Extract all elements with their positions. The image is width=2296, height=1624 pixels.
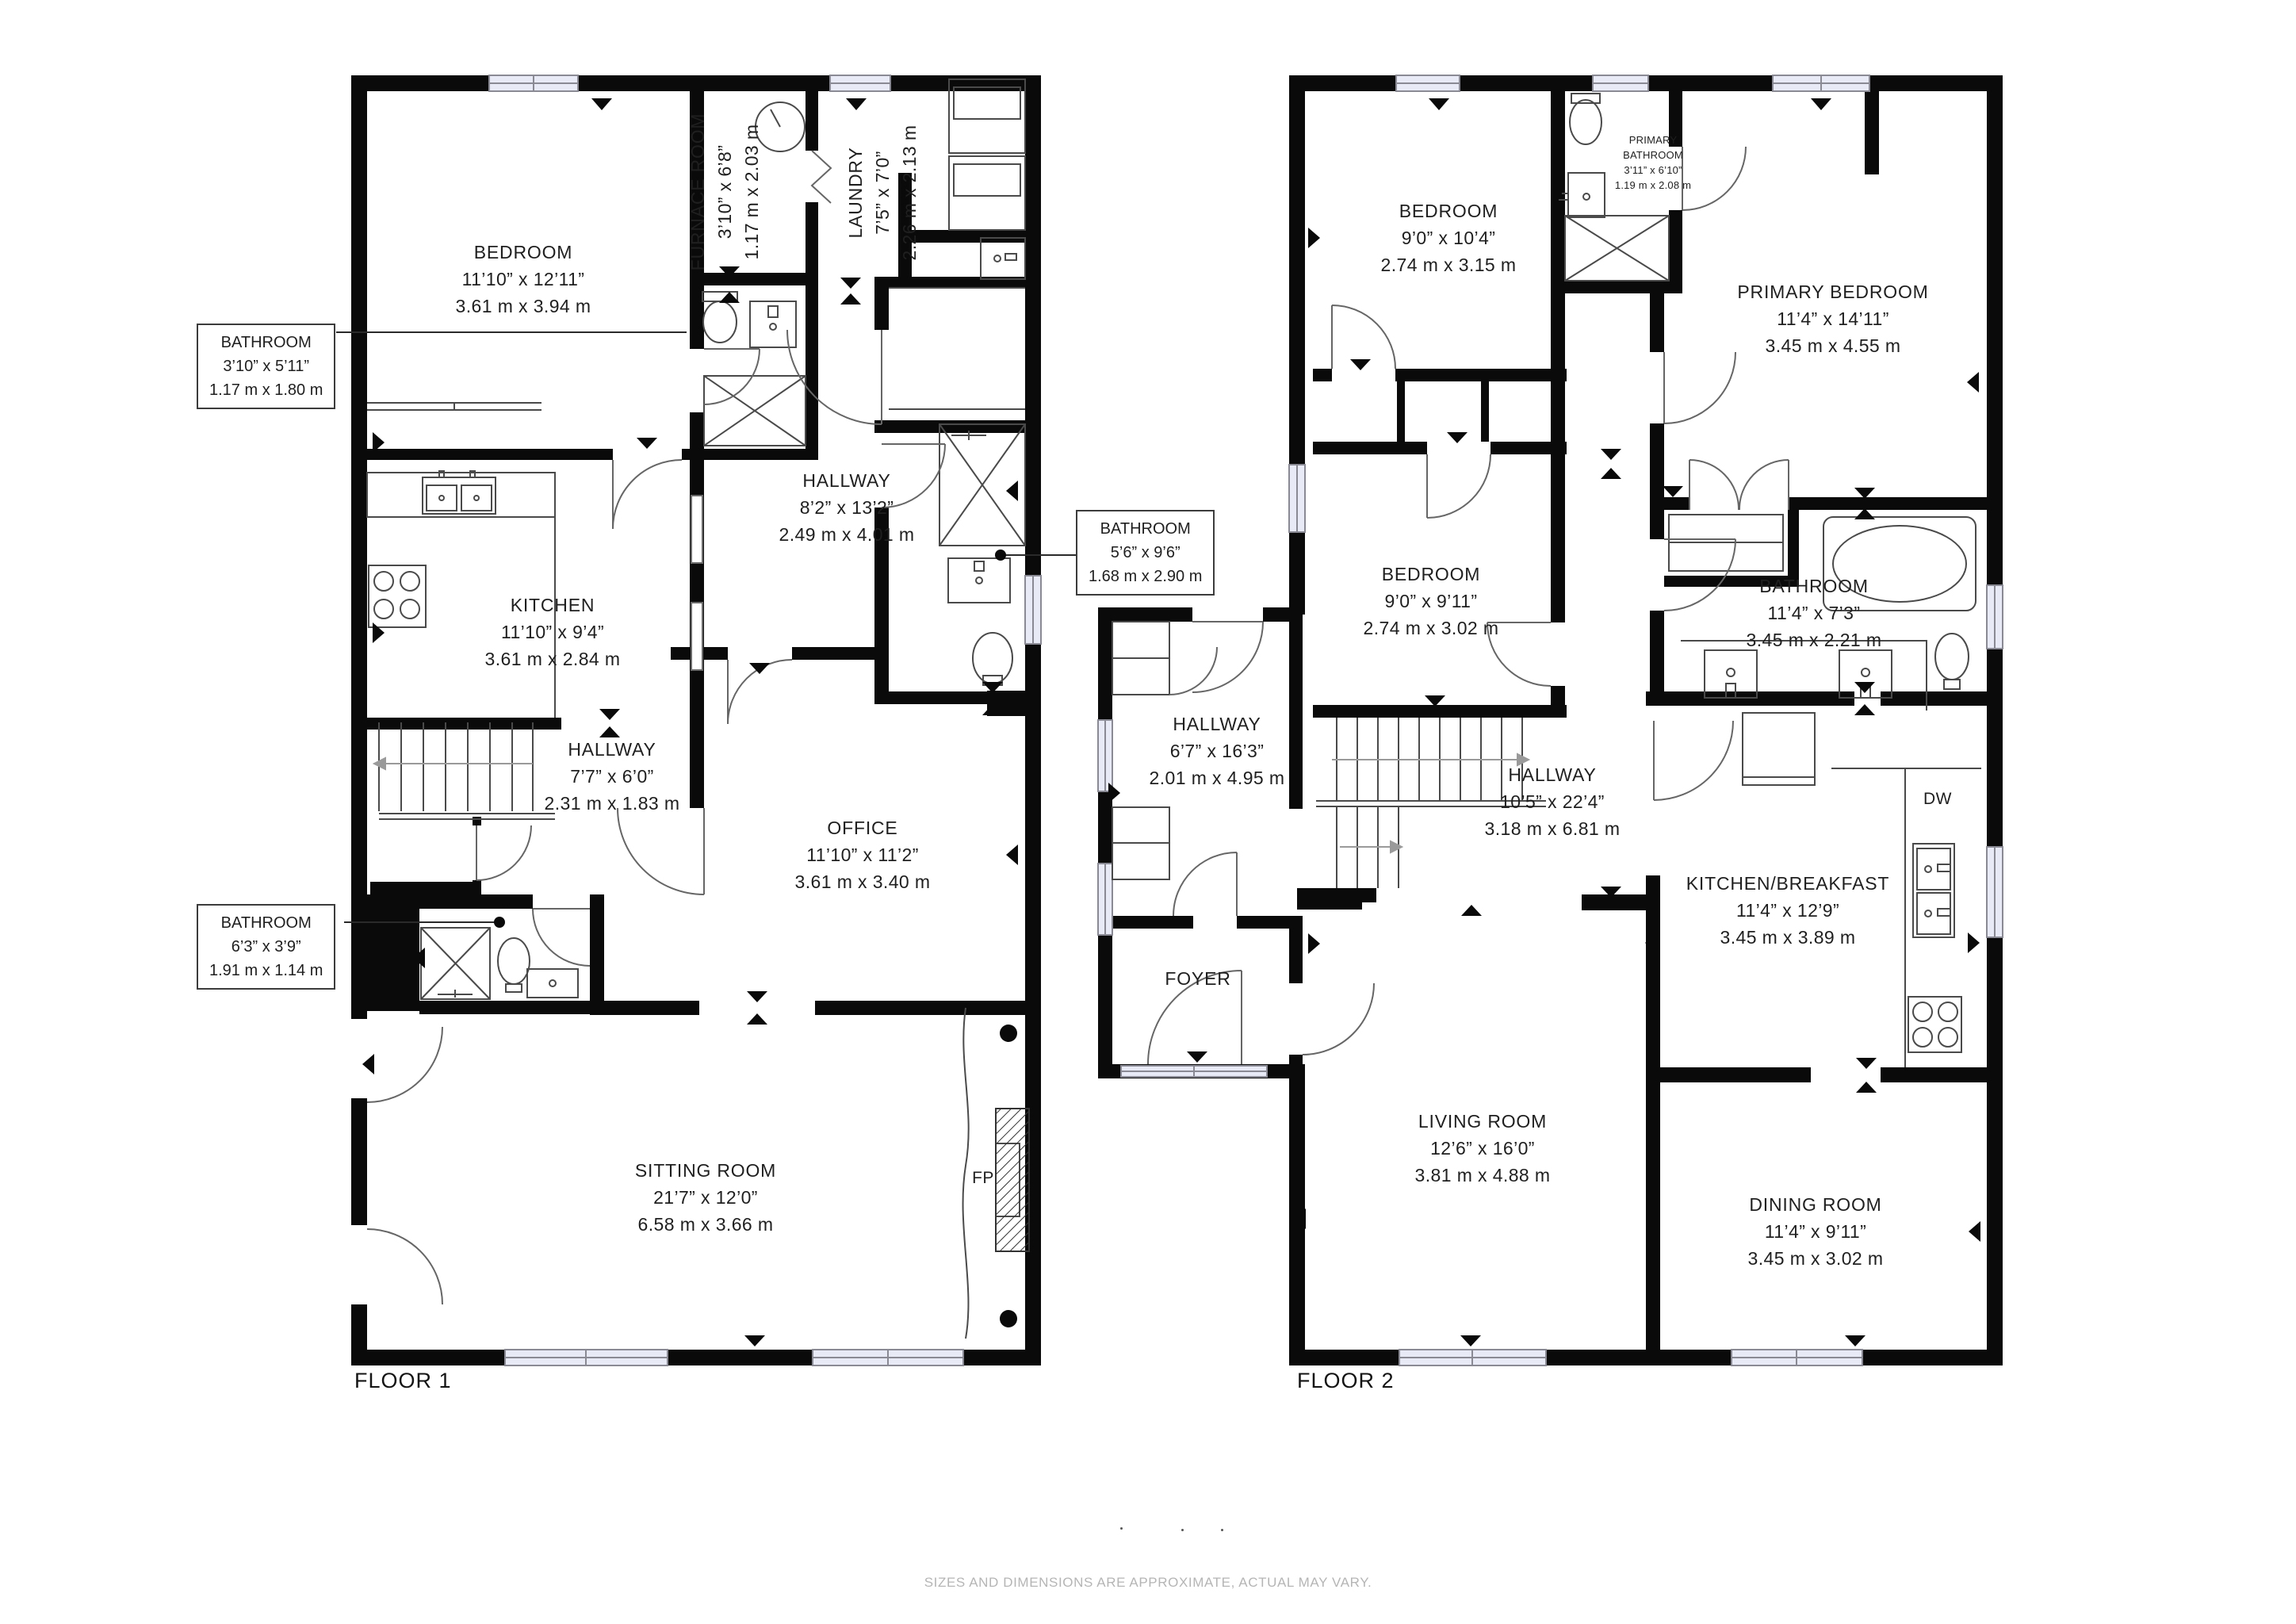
floor1-title: FLOOR 1 xyxy=(354,1369,452,1393)
floor2-title: FLOOR 2 xyxy=(1297,1369,1395,1393)
callout-bathroom-mid: BATHROOM 5’6” x 9’6” 1.68 m x 2.90 m xyxy=(1076,510,1215,596)
sitting-room-dot-top xyxy=(1000,1025,1017,1042)
room-label-sitting-room: SITTING ROOM 21’7” x 12’0” 6.58 m x 3.66… xyxy=(635,1157,776,1238)
callout-bathroom-top: BATHROOM 3’10” x 5’11” 1.17 m x 1.80 m xyxy=(197,324,335,409)
fireplace-label: FP xyxy=(972,1169,994,1188)
room-label-hallway-side-f2: HALLWAY 6’7” x 16’3” 2.01 m x 4.95 m xyxy=(1150,710,1285,791)
room-label-living-room: LIVING ROOM 12’6” x 16’0” 3.81 m x 4.88 … xyxy=(1415,1108,1551,1189)
room-label-foyer: FOYER xyxy=(1165,965,1230,992)
room-label-office: OFFICE 11’10” x 11’2” 3.61 m x 3.40 m xyxy=(795,814,931,895)
room-label-bedroom-top-f2: BEDROOM 9’0” x 10’4” 2.74 m x 3.15 m xyxy=(1381,197,1517,278)
sitting-room-dot-bottom xyxy=(1000,1310,1017,1327)
disclaimer-text: SIZES AND DIMENSIONS ARE APPROXIMATE, AC… xyxy=(0,1575,2296,1591)
room-label-kitchen-f1: KITCHEN 11’10” x 9’4” 3.61 m x 2.84 m xyxy=(485,592,621,672)
room-label-laundry: LAUNDRY 7’5” x 7’0” 2.26 m x 2.13 m xyxy=(842,125,923,261)
floorplan-page: BEDROOM 11’10” x 12’11” 3.61 m x 3.94 m … xyxy=(0,0,2296,1624)
room-label-bedroom-f1: BEDROOM 11’10” x 12’11” 3.61 m x 3.94 m xyxy=(456,239,591,320)
room-label-primary-bedroom: PRIMARY BEDROOM 11’4” x 14’11” 3.45 m x … xyxy=(1737,278,1928,359)
room-label-bathroom-f2: BATHROOM 11’4” x 7’3” 3.45 m x 2.21 m xyxy=(1747,573,1882,653)
room-label-bedroom-mid-f2: BEDROOM 9’0” x 9’11” 2.74 m x 3.02 m xyxy=(1364,561,1499,642)
fireplace-hatch xyxy=(996,1109,1029,1251)
room-label-hallway-main-f2: HALLWAY 10’5” x 22’4” 3.18 m x 6.81 m xyxy=(1485,761,1621,842)
callout-bathroom-small: BATHROOM 6’3” x 3’9” 1.91 m x 1.14 m xyxy=(197,904,335,990)
room-label-furnace-room: FURNACE ROOM 3’10” x 6’8” 1.17 m x 2.03 … xyxy=(684,113,765,271)
floorplan-drawing xyxy=(0,0,2296,1624)
faded-logo-marks xyxy=(1115,1524,1234,1534)
room-label-hallway-main-f1: HALLWAY 8’2” x 13’2” 2.49 m x 4.01 m xyxy=(779,467,915,548)
dishwasher-label: DW xyxy=(1923,790,1952,809)
room-label-dining-room: DINING ROOM 11’4” x 9’11” 3.45 m x 3.02 … xyxy=(1748,1191,1884,1272)
room-label-kitchen-f2: KITCHEN/BREAKFAST 11’4” x 12’9” 3.45 m x… xyxy=(1686,870,1889,951)
door-openings xyxy=(351,147,1789,1304)
room-label-primary-bathroom: PRIMARY BATHROOM 3’11” x 6’10” 1.19 m x … xyxy=(1615,132,1691,193)
room-label-hallway-small-f1: HALLWAY 7’7” x 6’0” 2.31 m x 1.83 m xyxy=(545,736,680,817)
